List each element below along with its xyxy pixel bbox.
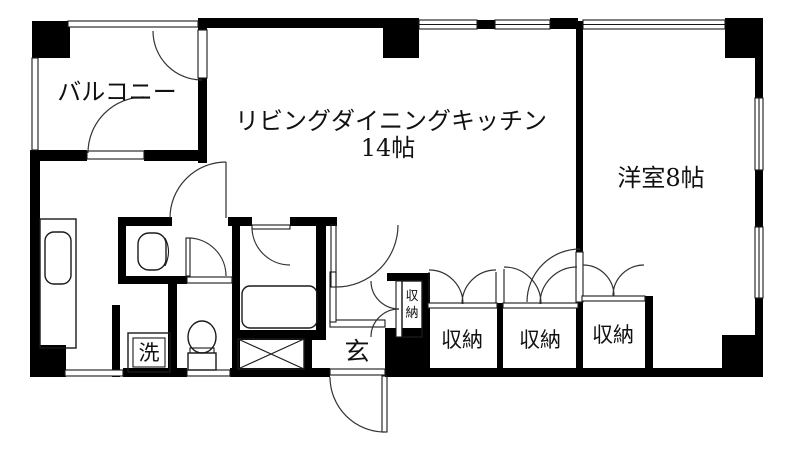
wall-utility-mid-vertical <box>232 217 240 377</box>
wall-washroom-left <box>112 305 120 377</box>
wall-utility-top-c <box>290 217 337 226</box>
label-balcony: バルコニー <box>57 78 177 106</box>
wall-entrance-right-block <box>385 328 422 377</box>
label-smallcloset-char1: 収 <box>405 289 418 304</box>
label-closet-1: 収納 <box>441 328 483 352</box>
pillar-top-left <box>32 21 70 58</box>
wall-basinroom-left <box>118 217 126 284</box>
wall-closet1-2-divider <box>497 303 503 377</box>
label-smallcloset-char2: 納 <box>405 306 418 321</box>
pillar-top-middle <box>383 18 419 58</box>
floor-plan-svg: バルコニー リビングダイニングキッチン 14帖 洋室8帖 収納 収納 収納 収 … <box>0 0 800 455</box>
balcony-lower-door-leaf <box>87 151 144 159</box>
balcony-door-leaf <box>198 30 207 78</box>
wall-pipespace-right <box>304 332 312 377</box>
entrance-threshold <box>330 369 385 375</box>
wall-top-segment2 <box>550 18 578 29</box>
label-ldk: リビングダイニングキッチン <box>235 107 547 135</box>
wall-utility-top-a <box>118 217 172 226</box>
wall-top-ldk <box>198 18 383 28</box>
label-laundry: 洗 <box>139 341 160 365</box>
label-ldk-size: 14帖 <box>361 134 416 162</box>
basinroom-bottom-opening <box>187 277 232 283</box>
wall-closet3-right <box>645 296 653 377</box>
wall-top-segment <box>477 20 495 29</box>
entrance-step-line <box>330 320 385 327</box>
balcony-railing-top <box>68 21 198 27</box>
label-western-room: 洋室8帖 <box>617 164 704 192</box>
balcony-railing-left <box>32 58 38 150</box>
pillar-bottom-left <box>30 345 66 377</box>
wall-right-1 <box>755 58 763 98</box>
label-closet-3: 収納 <box>592 323 634 347</box>
closet3-front-line <box>582 296 645 301</box>
western-door-leaf <box>576 252 583 302</box>
wall-right-2 <box>755 170 763 227</box>
pillar-top-right <box>725 18 763 58</box>
wall-closet2-3-divider <box>576 302 583 377</box>
wall-ldk-western <box>576 21 583 252</box>
wall-right-3 <box>755 298 763 338</box>
wall-balcony-bottom-right <box>144 150 207 161</box>
wall-balcony-bottom-left <box>32 150 87 161</box>
window-bottom-toilet <box>187 370 230 376</box>
wall-bottom-4 <box>385 368 722 377</box>
pillar-bottom-right <box>722 335 763 377</box>
floor-plan: バルコニー リビングダイニングキッチン 14帖 洋室8帖 収納 収納 収納 収 … <box>0 0 800 455</box>
label-closet-2: 収納 <box>519 328 561 352</box>
label-entrance: 玄 <box>344 337 369 366</box>
wall-balcony-right-bottom <box>198 78 207 163</box>
window-bottom-washroom <box>65 370 123 376</box>
wall-left <box>30 150 40 377</box>
